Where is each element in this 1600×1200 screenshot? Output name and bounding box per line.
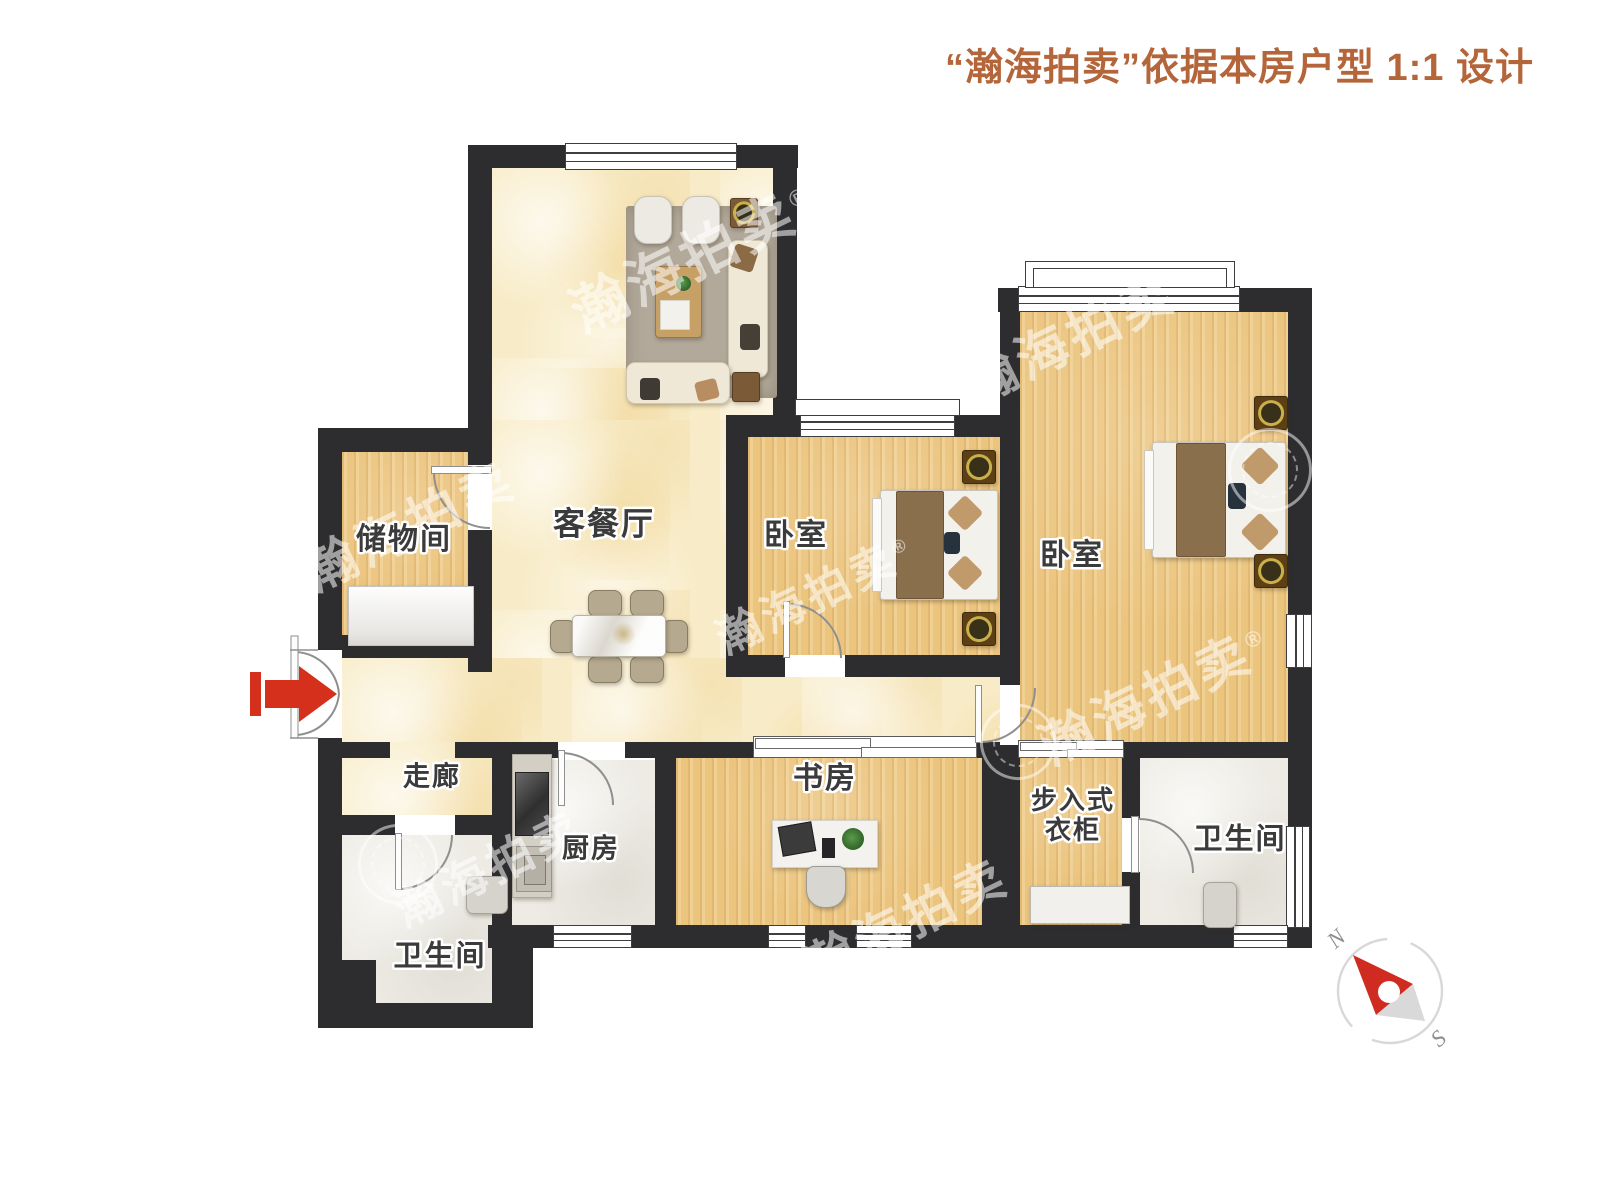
window-mullion [1302,827,1304,927]
plant-icon [842,828,864,850]
door-leaf [975,685,982,743]
bedside-lamp-icon [1258,558,1284,584]
wall-segment [318,738,342,1028]
sliding-door [753,736,977,758]
wall-segment [912,925,1233,948]
window-mullion [1019,295,1239,297]
bed-pillow [944,532,960,554]
sliding-door-panel [1067,749,1124,758]
room-label-corridor: 走廊 [403,761,461,792]
wall-segment [318,428,342,650]
entrance-arrow-icon [245,660,340,724]
wall-segment [726,437,748,677]
door-opening [785,655,845,677]
window-mullion [769,940,805,942]
room-label-kitchen: 厨房 [562,833,620,864]
nightstand [1254,554,1288,588]
nightstand [962,450,996,484]
wall-segment [468,145,492,465]
notebook-icon [822,838,835,858]
bed-bench [1144,450,1154,550]
wall-segment [1000,288,1020,685]
window-mullion [857,933,911,935]
bedside-lamp-icon [966,616,992,642]
plant-icon [676,276,691,291]
window [800,413,955,437]
dining-table [572,615,666,657]
table-lamp-icon [733,201,755,224]
wall-segment [1124,742,1312,758]
room-label-bedroom-right: 卧室 [1040,539,1104,574]
window [1286,614,1312,668]
wall-segment [982,742,1020,948]
bedside-lamp-icon [966,454,992,480]
wall-segment [318,428,492,452]
bay-window-frame [1033,268,1227,288]
window-mullion [1295,615,1297,667]
window-mullion [801,421,954,423]
window [1018,286,1240,312]
side-table [732,372,760,402]
window-mullion [1234,940,1287,942]
door-opening [395,815,455,835]
armchair [634,196,672,244]
nightstand [962,612,996,646]
armchair [682,196,720,244]
room-label-closet: 步入式 衣柜 [1031,786,1115,846]
bed-bench [872,498,882,592]
bedside-lamp-icon [1258,400,1284,426]
bathroom-fixture [1203,882,1237,928]
window [553,925,632,948]
bed-blanket [896,491,944,599]
window [565,143,737,170]
wall-segment [1122,758,1140,818]
floor-plan-canvas: “瀚海拍卖”依据本房户型 1:1 设计 储物间 客餐厅 卧室 卧室 走廊 厨房 … [0,0,1600,1200]
dining-chair [588,590,622,617]
room-label-bathroom-left: 卫生间 [393,940,486,973]
window-mullion [554,933,631,935]
window [1233,925,1288,948]
door-leaf [783,601,790,658]
sliding-door-panel [755,738,871,749]
wall-segment [806,925,856,948]
kitchen-sink [516,846,552,892]
nightstand [1254,396,1288,430]
window-mullion [801,429,954,431]
closet-dresser [1030,886,1130,924]
wall-segment [845,655,1020,677]
side-table [730,198,758,228]
coffee-table-tray [660,300,690,330]
page-title: “瀚海拍卖”依据本房户型 1:1 设计 [945,36,1534,91]
wall-segment [632,925,768,948]
room-label-storage: 储物间 [356,523,452,558]
sink-basin [524,855,546,885]
wall-segment [625,742,755,758]
dining-chair [588,656,622,683]
door-leaf [1131,816,1139,873]
window-mullion [566,161,736,163]
room-label-bathroom-right: 卫生间 [1193,823,1286,856]
window-mullion [1234,933,1287,935]
window [768,925,806,948]
sliding-door-panel [861,747,977,758]
storage-cabinet [348,586,474,646]
laptop-icon [778,821,817,856]
window-mullion [1303,615,1305,667]
window-mullion [566,152,736,154]
cooktop [515,772,549,836]
dining-chair [630,590,664,617]
window-mullion [1019,303,1239,305]
dining-chair [630,656,664,683]
window-mullion [1294,827,1296,927]
door-leaf [558,750,565,806]
door-leaf [431,466,492,474]
sliding-door [1018,740,1124,758]
window-mullion [554,940,631,942]
window [1286,826,1310,928]
room-label-bedroom-left: 卧室 [764,519,828,554]
bay-window-frame [795,399,960,416]
window-mullion [769,933,805,935]
wall-segment [342,815,395,835]
sofa-pillow [640,378,660,400]
bed-blanket [1176,443,1226,557]
wall-segment [655,742,676,948]
desk-chair [806,866,846,908]
sofa-pillow [740,324,760,350]
room-label-living: 客餐厅 [553,506,655,543]
window-mullion [857,940,911,942]
window [856,925,912,948]
room-label-study: 书房 [793,762,857,797]
door-leaf [395,833,402,890]
bed-pillow [1228,483,1246,509]
bathroom-sink [466,876,508,914]
